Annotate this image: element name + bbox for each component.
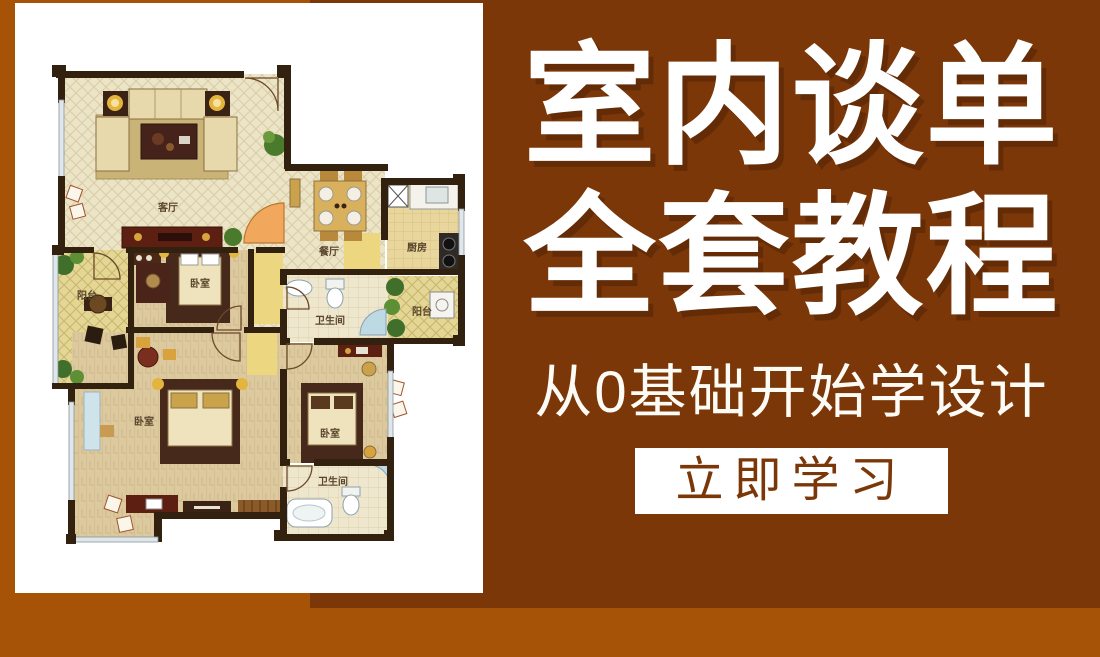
chaise-icon bbox=[84, 392, 100, 450]
room-label-kitchen: 厨房 bbox=[407, 241, 427, 254]
course-banner: 客厅 餐厅 厨房 阳台 卧室 卫生间 阳台 卧室 卧室 卫生间 室内谈单 全套教… bbox=[0, 0, 1100, 657]
floor-plan: 客厅 餐厅 厨房 阳台 卧室 卫生间 阳台 卧室 卧室 卫生间 bbox=[48, 65, 468, 570]
room-label-dining: 餐厅 bbox=[318, 245, 339, 258]
toilet-icon bbox=[343, 495, 359, 515]
sofa-left-icon bbox=[96, 117, 129, 171]
room-label-bathroom-bottom: 卫生间 bbox=[318, 475, 348, 488]
plant-icon bbox=[224, 228, 242, 246]
room-label-balcony-left: 阳台 bbox=[77, 289, 97, 302]
hero-text-block: 室内谈单 全套教程 从0基础开始学设计 立即学习 bbox=[483, 0, 1100, 608]
washer-icon bbox=[430, 292, 454, 318]
sofa-right-icon bbox=[204, 117, 237, 171]
room-label-balcony-right: 阳台 bbox=[412, 305, 432, 318]
learn-now-button[interactable]: 立即学习 bbox=[635, 448, 947, 514]
room-label-bedroom-main: 卧室 bbox=[134, 415, 154, 428]
tv-icon bbox=[179, 136, 190, 144]
toilet-icon bbox=[327, 288, 343, 308]
sink-icon bbox=[426, 187, 448, 203]
floor-plan-card: 客厅 餐厅 厨房 阳台 卧室 卫生间 阳台 卧室 卧室 卫生间 bbox=[15, 3, 483, 593]
title-line-1: 室内谈单 bbox=[524, 32, 1060, 182]
sink-icon bbox=[286, 280, 312, 296]
plant-icon bbox=[386, 278, 404, 296]
room-label-bathroom-top: 卫生间 bbox=[315, 314, 345, 327]
sofa-long-icon bbox=[129, 89, 207, 119]
room-label-bedroom-top: 卧室 bbox=[190, 277, 210, 290]
title-line-2: 全套教程 bbox=[524, 182, 1060, 332]
subtitle: 从0基础开始学设计 bbox=[534, 362, 1048, 424]
room-label-bedroom-right: 卧室 bbox=[320, 427, 340, 440]
room-label-living: 客厅 bbox=[157, 201, 178, 214]
bench-icon bbox=[238, 500, 284, 514]
